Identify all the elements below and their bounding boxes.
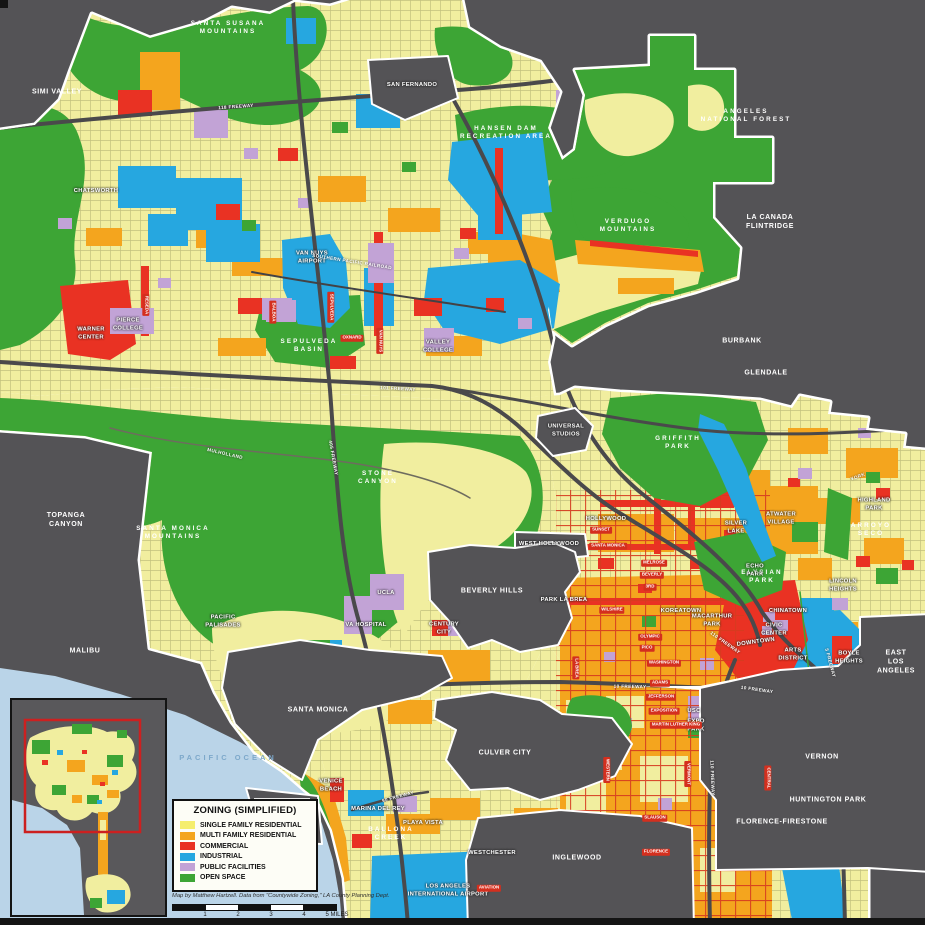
legend-swatch: [180, 832, 195, 840]
legend-item-label: MULTI FAMILY RESIDENTIAL: [200, 832, 296, 839]
scale-segment: [238, 905, 271, 910]
legend-swatch: [180, 842, 195, 850]
legend-item: COMMERCIAL: [180, 842, 310, 850]
legend-item-label: INDUSTRIAL: [200, 853, 242, 860]
scale-segment: [303, 905, 336, 910]
legend-item: PUBLIC FACILITIES: [180, 863, 310, 871]
legend-item: MULTI FAMILY RESIDENTIAL: [180, 832, 310, 840]
scale-segment: [173, 905, 206, 910]
scale-segment: [206, 905, 239, 910]
scale-segment: [271, 905, 304, 910]
legend-swatch: [180, 853, 195, 861]
corner-square: [0, 0, 8, 8]
legend-swatch: [180, 874, 195, 882]
legend-item-label: OPEN SPACE: [200, 874, 245, 881]
legend-swatch: [180, 821, 195, 829]
legend-item: INDUSTRIAL: [180, 853, 310, 861]
legend-title: ZONING (SIMPLIFIED): [180, 805, 310, 816]
bottom-bar: [0, 918, 925, 925]
inset-map: [10, 698, 167, 917]
enclave-inglewood: [466, 810, 694, 925]
scale-bar: [172, 904, 337, 911]
legend-item: OPEN SPACE: [180, 874, 310, 882]
credit-line: Map by Matthew Hartzell. Data from "Coun…: [172, 893, 372, 899]
legend-item-label: SINGLE FAMILY RESIDENTIAL: [200, 822, 302, 829]
legend: ZONING (SIMPLIFIED) SINGLE FAMILY RESIDE…: [172, 799, 318, 892]
legend-item: SINGLE FAMILY RESIDENTIAL: [180, 821, 310, 829]
legend-swatch: [180, 863, 195, 871]
legend-rows: SINGLE FAMILY RESIDENTIALMULTI FAMILY RE…: [180, 821, 310, 882]
legend-item-label: COMMERCIAL: [200, 843, 248, 850]
legend-item-label: PUBLIC FACILITIES: [200, 864, 266, 871]
zoning-map-page: SIMI VALLEYSAN FERNANDOLA CANADA FLINTRI…: [0, 0, 925, 925]
